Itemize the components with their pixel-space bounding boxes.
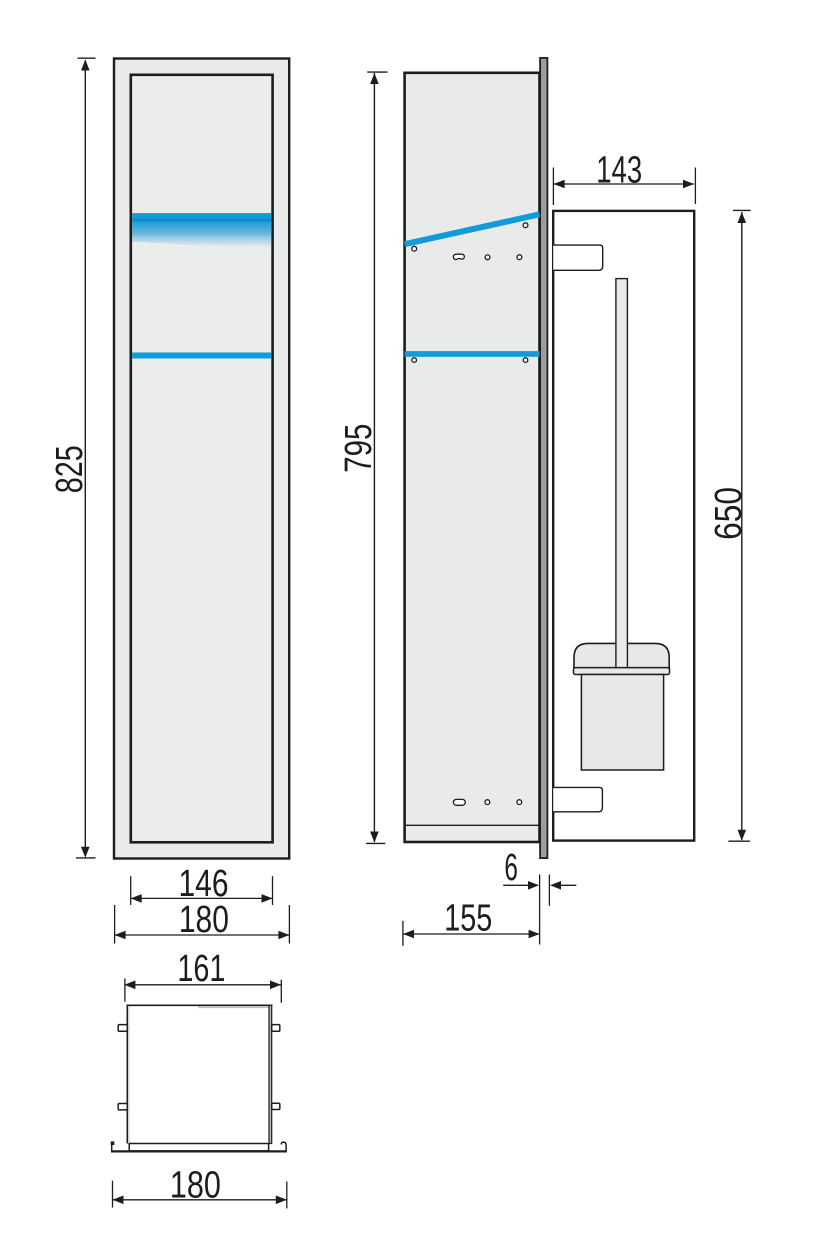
svg-text:650: 650 [708,487,750,540]
svg-text:825: 825 [49,445,91,493]
svg-text:180: 180 [179,899,229,941]
svg-text:155: 155 [444,898,492,940]
svg-text:795: 795 [338,424,380,473]
svg-text:6: 6 [504,845,518,888]
svg-text:161: 161 [177,948,225,990]
svg-text:143: 143 [596,149,642,191]
svg-text:180: 180 [170,1165,221,1207]
